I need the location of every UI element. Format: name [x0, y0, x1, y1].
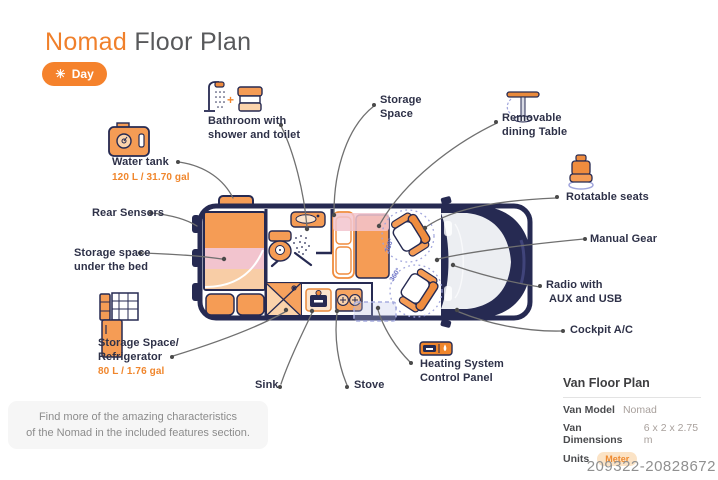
callout-rotatable-seats: Rotatable seats [566, 191, 649, 205]
water-tank-capacity: 120 L / 31.70 gal [112, 171, 190, 185]
sun-icon: ☀ [55, 68, 66, 80]
panel-title: Van Floor Plan [563, 376, 703, 390]
panel-divider [563, 397, 701, 398]
callout-stove: Stove [354, 379, 384, 393]
fridge-compartment [266, 283, 301, 316]
rotatable-seat-icon [569, 155, 593, 189]
cab-front [441, 206, 531, 318]
heating-zone [354, 302, 396, 321]
callout-water-tank: Water tank 120 L / 31.70 gal [112, 156, 190, 184]
callout-cockpit-ac: Cockpit A/C [570, 324, 633, 338]
callout-bathroom: Bathroom with shower and toilet [208, 115, 300, 142]
van-dimensions-row: Van Dimensions 6 x 2 x 2.75 m [563, 422, 703, 446]
page-title-accent: Nomad [45, 28, 127, 56]
van-model-value: Nomad [623, 404, 657, 416]
day-mode-label: Day [72, 67, 94, 81]
callout-refrigerator: Storage Space/ Refrigerator 80 L / 1.76 … [98, 337, 179, 379]
callout-storage-space: Storage Space [380, 94, 422, 121]
callout-radio: Radio with AUX and USB [546, 279, 622, 306]
van-model-row: Van Model Nomad [563, 404, 703, 416]
toilet-fixture [269, 231, 291, 261]
plus-icon: + [227, 93, 234, 107]
washbasin-fixture [291, 212, 325, 227]
toilet-icon [238, 87, 262, 111]
van-dimensions-value: 6 x 2 x 2.75 m [644, 422, 703, 446]
page-title-rest: Floor Plan [134, 28, 251, 56]
day-mode-toggle[interactable]: ☀ Day [42, 62, 107, 86]
callout-sink: Sink [255, 379, 279, 393]
water-tank-icon [109, 123, 149, 156]
callout-manual-gear: Manual Gear [590, 233, 657, 247]
shower-icon [204, 82, 225, 111]
refrigerator-capacity: 80 L / 1.76 gal [98, 365, 179, 379]
heating-panel-icon [420, 342, 452, 355]
watermark-id: 209322-20828672 [587, 458, 716, 475]
callout-rear-sensors: Rear Sensors [92, 207, 164, 221]
sink-unit [306, 289, 331, 311]
page-title: Nomad Floor Plan [45, 28, 251, 57]
nomad-floor-plan-page: 360° 360° [0, 0, 718, 480]
features-note: Find more of the amazing characteristics… [8, 401, 268, 449]
callout-heating: Heating System Control Panel [420, 358, 504, 385]
callout-removable-table: Removable dining Table [502, 112, 567, 139]
callout-storage-under-bed: Storage space under the bed [74, 247, 151, 274]
bed [204, 212, 265, 290]
